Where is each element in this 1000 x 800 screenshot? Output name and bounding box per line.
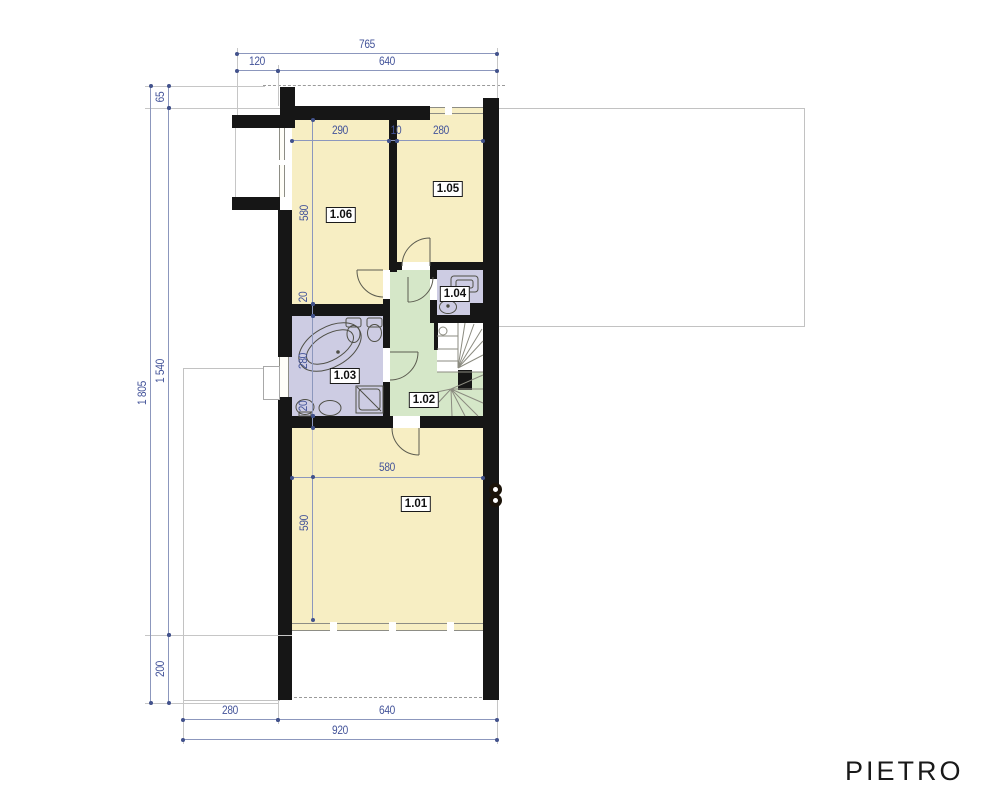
dim-label: 290 bbox=[332, 125, 348, 137]
dim-line bbox=[183, 719, 278, 720]
door-106 bbox=[357, 270, 383, 297]
dim-label: 200 bbox=[155, 661, 167, 677]
extension-line bbox=[237, 48, 238, 115]
door-104 bbox=[408, 277, 433, 302]
dim-label: 1 805 bbox=[137, 381, 149, 405]
door-101 bbox=[392, 428, 419, 455]
door-103 bbox=[390, 352, 418, 380]
dim-line bbox=[237, 70, 278, 71]
stair-newel bbox=[439, 327, 447, 335]
dim-line bbox=[278, 719, 497, 720]
dim-line bbox=[292, 140, 389, 141]
extension-line bbox=[145, 108, 280, 109]
dim-label: 640 bbox=[379, 705, 395, 717]
dim-line bbox=[397, 140, 483, 141]
extension-line bbox=[145, 86, 265, 87]
floor-title: PIETRO bbox=[845, 756, 964, 787]
dim-label: 280 bbox=[433, 125, 449, 137]
dim-line bbox=[237, 53, 497, 54]
dim-line bbox=[278, 70, 497, 71]
stair-treads bbox=[437, 323, 483, 416]
dim-label: 280 bbox=[298, 353, 310, 369]
dim-label: 920 bbox=[332, 725, 348, 737]
dim-line bbox=[168, 86, 169, 108]
dim-label: 580 bbox=[299, 205, 311, 221]
dim-line bbox=[168, 635, 169, 703]
dim-label: 120 bbox=[249, 56, 265, 68]
floor-plan-canvas: 765 120 640 1 805 65 1 540 200 290 10 28… bbox=[0, 0, 1000, 800]
dim-label: 10 bbox=[391, 125, 402, 137]
dim-line bbox=[312, 316, 313, 416]
dim-line bbox=[150, 86, 151, 703]
extension-line bbox=[312, 428, 313, 477]
dim-label: 580 bbox=[379, 462, 395, 474]
dim-line bbox=[312, 120, 313, 304]
dim-line bbox=[312, 477, 313, 620]
dim-label: 640 bbox=[379, 56, 395, 68]
room-label-101: 1.01 bbox=[401, 496, 431, 512]
extension-line bbox=[497, 48, 498, 98]
room-label-103: 1.03 bbox=[330, 368, 360, 384]
bidet-icon bbox=[367, 318, 382, 342]
dim-label: 65 bbox=[155, 92, 167, 103]
dim-label: 765 bbox=[359, 39, 375, 51]
shower-icon bbox=[356, 386, 383, 413]
wc-sink-icon bbox=[440, 301, 457, 314]
room-label-106: 1.06 bbox=[326, 207, 356, 223]
dim-label: 590 bbox=[299, 515, 311, 531]
door-arcs bbox=[357, 238, 433, 455]
dim-label: 20 bbox=[298, 401, 310, 412]
dim-label: 280 bbox=[222, 705, 238, 717]
bidet-icon-bottom bbox=[319, 401, 341, 416]
dim-line bbox=[168, 108, 169, 635]
dim-label: 20 bbox=[298, 292, 310, 303]
room-label-102: 1.02 bbox=[409, 392, 439, 408]
room-label-104: 1.04 bbox=[440, 286, 470, 302]
extension-line bbox=[145, 703, 278, 704]
dim-line bbox=[183, 739, 497, 740]
dim-label: 1 540 bbox=[155, 359, 167, 383]
dim-line bbox=[292, 477, 483, 478]
dim-line bbox=[312, 416, 313, 428]
chimney-flue-symbol bbox=[489, 494, 502, 507]
door-105 bbox=[402, 238, 430, 266]
room-label-105: 1.05 bbox=[433, 181, 463, 197]
